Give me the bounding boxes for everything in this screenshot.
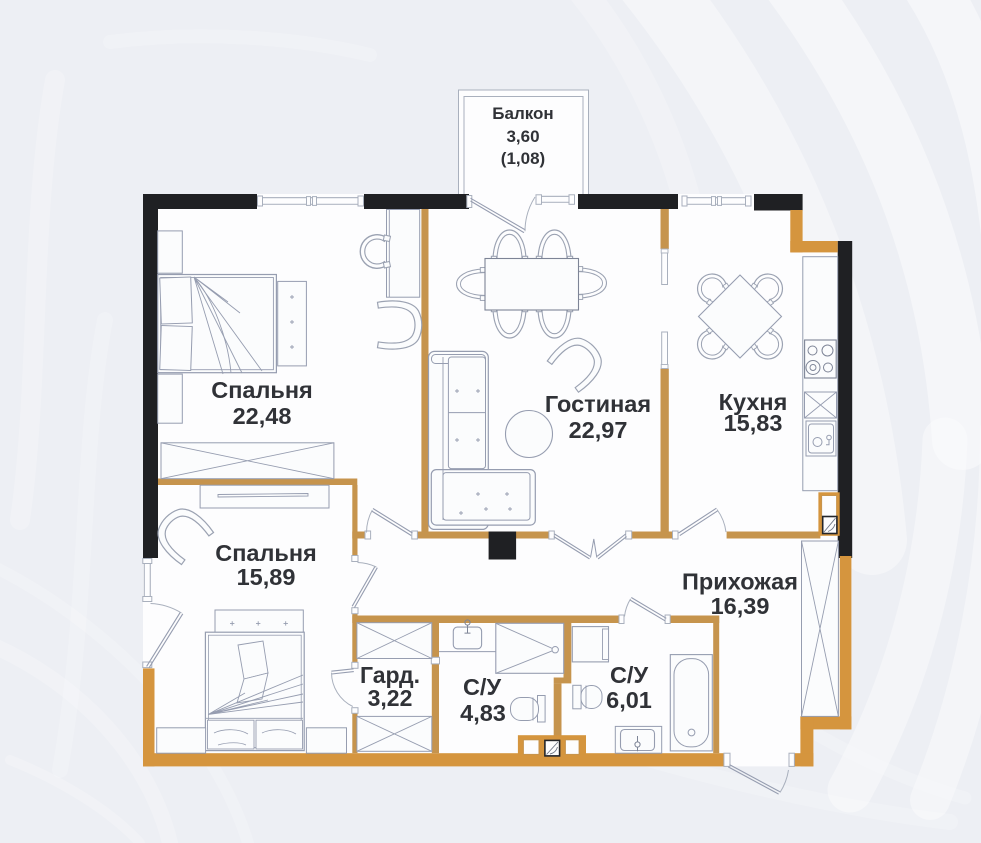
svg-text:3,60: 3,60	[506, 127, 539, 146]
svg-text:3,22: 3,22	[368, 685, 413, 711]
svg-text:15,89: 15,89	[237, 564, 296, 590]
svg-text:22,97: 22,97	[569, 417, 628, 443]
svg-text:С/У: С/У	[610, 662, 649, 688]
svg-text:Прихожая: Прихожая	[682, 569, 798, 595]
svg-text:(1,08): (1,08)	[501, 149, 545, 168]
svg-text:Спальня: Спальня	[211, 377, 313, 403]
svg-text:22,48: 22,48	[233, 403, 292, 429]
svg-text:Спальня: Спальня	[215, 540, 317, 566]
svg-text:4,83: 4,83	[460, 700, 506, 726]
svg-text:С/У: С/У	[463, 674, 502, 700]
svg-text:Балкон: Балкон	[492, 104, 553, 123]
svg-text:15,83: 15,83	[724, 410, 783, 436]
svg-text:Гостиная: Гостиная	[545, 391, 651, 417]
svg-text:16,39: 16,39	[711, 593, 770, 619]
svg-text:6,01: 6,01	[606, 687, 652, 713]
